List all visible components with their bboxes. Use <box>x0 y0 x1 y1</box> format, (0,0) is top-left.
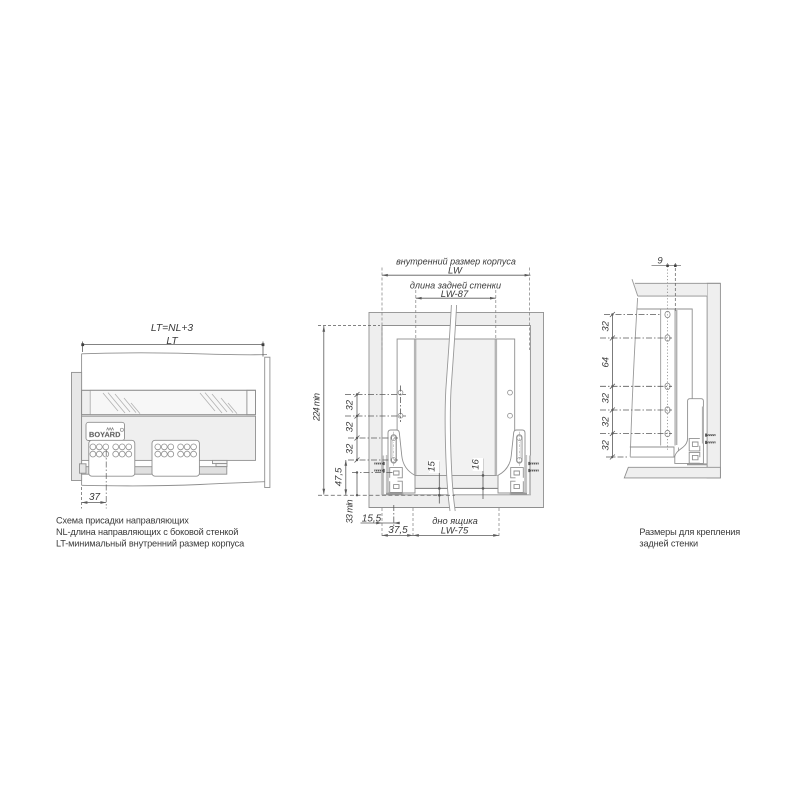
svg-text:LT: LT <box>166 336 178 347</box>
svg-text:64: 64 <box>600 357 611 368</box>
svg-text:37: 37 <box>89 492 101 503</box>
svg-text:32: 32 <box>600 392 611 403</box>
svg-text:NL-длина направляющих с боково: NL-длина направляющих с боковой стенкой <box>56 527 238 537</box>
svg-text:32: 32 <box>600 320 611 331</box>
svg-text:16: 16 <box>470 459 481 470</box>
svg-text:LT=NL+3: LT=NL+3 <box>151 323 193 334</box>
svg-text:LW: LW <box>448 266 463 277</box>
svg-text:BOYARD: BOYARD <box>89 430 121 439</box>
svg-text:37,5: 37,5 <box>388 525 408 536</box>
svg-text:32: 32 <box>345 399 356 410</box>
svg-text:32: 32 <box>600 439 611 450</box>
svg-text:224 min: 224 min <box>312 393 322 422</box>
svg-text:15,5: 15,5 <box>362 513 382 524</box>
svg-text:LW-75: LW-75 <box>441 525 469 536</box>
svg-text:32: 32 <box>345 443 356 454</box>
svg-text:15: 15 <box>427 461 438 472</box>
svg-text:47,5: 47,5 <box>333 467 344 486</box>
svg-text:Размеры для крепления: Размеры для крепления <box>639 527 740 537</box>
svg-text:LW-87: LW-87 <box>441 289 469 300</box>
svg-text:9: 9 <box>657 255 663 266</box>
svg-text:LT-минимальный внутренний разм: LT-минимальный внутренний размер корпуса <box>56 539 245 549</box>
svg-text:32: 32 <box>600 416 611 427</box>
svg-text:33 min: 33 min <box>345 500 355 524</box>
svg-text:Схема присадки направляющих: Схема присадки направляющих <box>56 516 189 526</box>
svg-text:задней стенки: задней стенки <box>639 539 698 549</box>
svg-text:32: 32 <box>345 421 356 432</box>
